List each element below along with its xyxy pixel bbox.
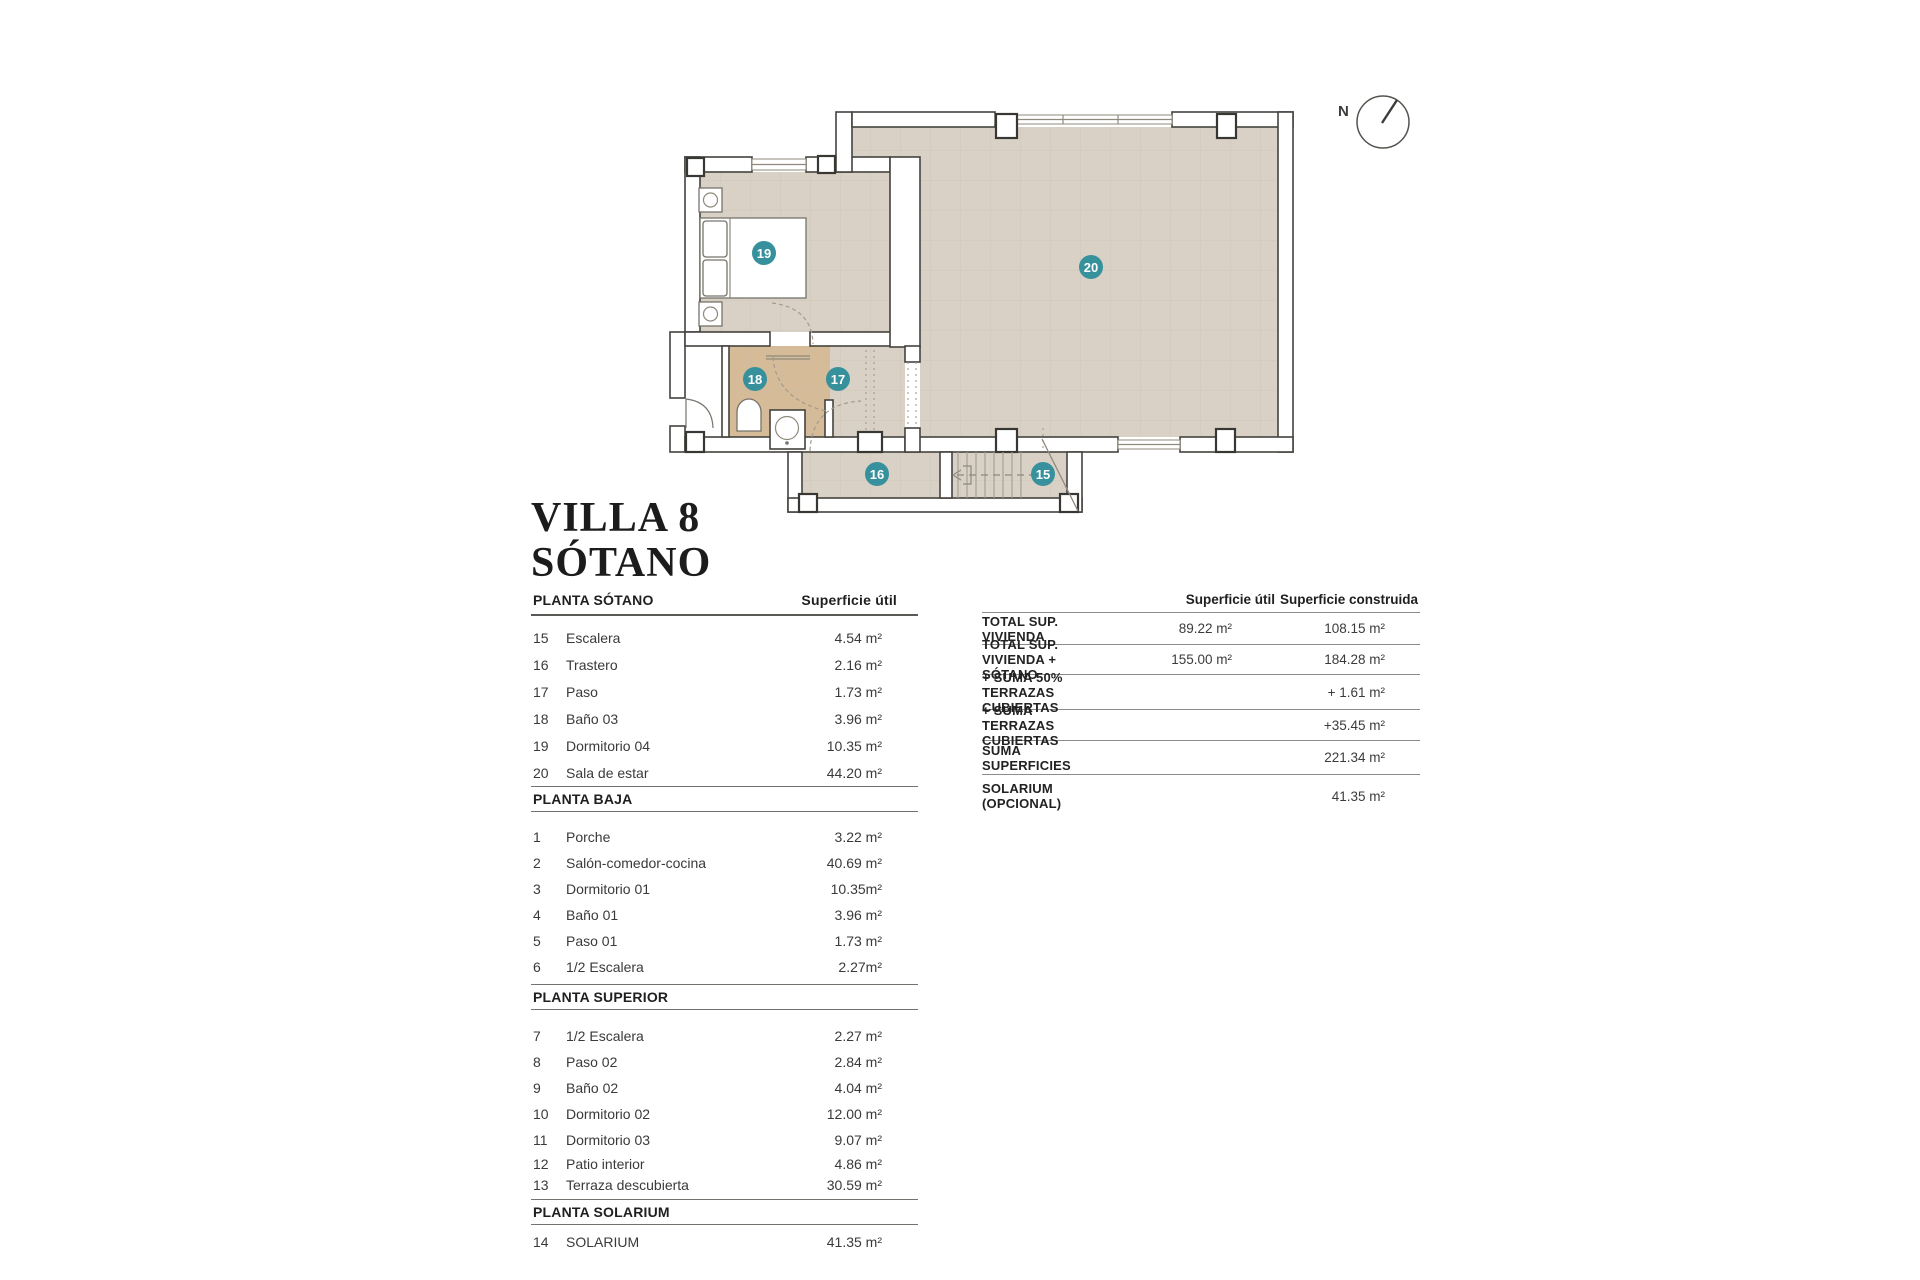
summary-header: Superficie útil Superficie construida: [982, 592, 1420, 613]
area-row: 20Sala de estar44.20 m²: [531, 759, 918, 786]
room-badge-18: 18: [748, 372, 762, 387]
floor-plan: N 15 16 17 18 19 20: [640, 78, 1430, 528]
section-header-sotano: PLANTA SÓTANO Superficie útil: [531, 592, 918, 616]
section-header-baja: PLANTA BAJA: [531, 786, 918, 812]
area-row: 13Terraza descubierta30.59 m²: [531, 1174, 918, 1195]
column-header-construida: Superficie construida: [1275, 592, 1420, 607]
summary-row: SOLARIUM (OPCIONAL) 41.35 m²: [982, 775, 1420, 817]
area-row: 61/2 Escalera2.27m²: [531, 954, 918, 980]
area-row: 2Salón-comedor-cocina40.69 m²: [531, 850, 918, 876]
area-row: 9Baño 024.04 m²: [531, 1075, 918, 1101]
section-header-superior: PLANTA SUPERIOR: [531, 984, 918, 1010]
title-line-2: SÓTANO: [531, 541, 711, 586]
area-row: 12Patio interior4.86 m²: [531, 1153, 918, 1174]
area-row: 3Dormitorio 0110.35m²: [531, 876, 918, 902]
plan-sheet: N 15 16 17 18 19 20 VILLA 8 SÓTANO PLANT…: [0, 0, 1920, 1280]
section-title: PLANTA SÓTANO: [533, 592, 654, 608]
north-label: N: [1338, 103, 1349, 120]
washbasin-icon: [770, 410, 805, 449]
area-row: 4Baño 013.96 m²: [531, 902, 918, 928]
areas-table: PLANTA SÓTANO Superficie útil 15Escalera…: [531, 592, 918, 1255]
column-header-util: Superficie útil: [1125, 592, 1275, 607]
area-row: 18Baño 033.96 m²: [531, 705, 918, 732]
bed: [700, 218, 806, 298]
compass: N: [1338, 96, 1409, 148]
room-badge-20: 20: [1084, 260, 1098, 275]
room-badge-17: 17: [831, 372, 845, 387]
room-badge-16: 16: [870, 467, 884, 482]
area-row: 15Escalera4.54 m²: [531, 624, 918, 651]
area-row: 17Paso1.73 m²: [531, 678, 918, 705]
toilet-icon: [737, 399, 761, 431]
area-row: 71/2 Escalera2.27 m²: [531, 1023, 918, 1049]
area-row: 19Dormitorio 0410.35 m²: [531, 732, 918, 759]
summary-row: + SUMA TERRAZAS CUBIERTAS +35.45 m²: [982, 710, 1420, 741]
room-badge-19: 19: [757, 246, 771, 261]
room-badge-15: 15: [1036, 467, 1050, 482]
area-row: 1Porche3.22 m²: [531, 824, 918, 850]
summary-table: Superficie útil Superficie construida TO…: [982, 592, 1420, 817]
area-row: 16Trastero2.16 m²: [531, 651, 918, 678]
area-row: 8Paso 022.84 m²: [531, 1049, 918, 1075]
area-row: 10Dormitorio 0212.00 m²: [531, 1101, 918, 1127]
section-header-solarium: PLANTA SOLARIUM: [531, 1199, 918, 1225]
area-row: 14SOLARIUM41.35 m²: [531, 1229, 918, 1255]
summary-row: SUMA SUPERFICIES 221.34 m²: [982, 741, 1420, 775]
page-title: VILLA 8 SÓTANO: [531, 496, 711, 587]
column-header-util: Superficie útil: [801, 592, 918, 608]
area-row: 5Paso 011.73 m²: [531, 928, 918, 954]
area-row: 11Dormitorio 039.07 m²: [531, 1127, 918, 1153]
title-line-1: VILLA 8: [531, 496, 711, 541]
